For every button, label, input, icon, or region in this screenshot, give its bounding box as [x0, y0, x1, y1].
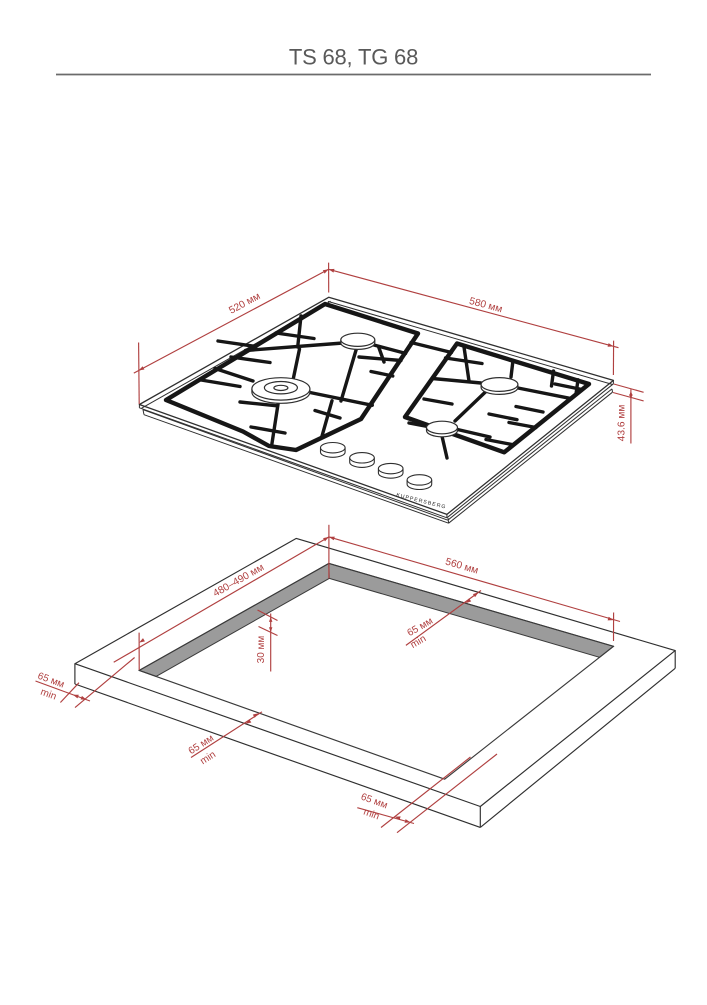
- svg-text:30 мм: 30 мм: [256, 636, 267, 664]
- svg-text:TS 68, TG 68: TS 68, TG 68: [289, 45, 418, 70]
- svg-text:43.6 мм: 43.6 мм: [616, 405, 627, 442]
